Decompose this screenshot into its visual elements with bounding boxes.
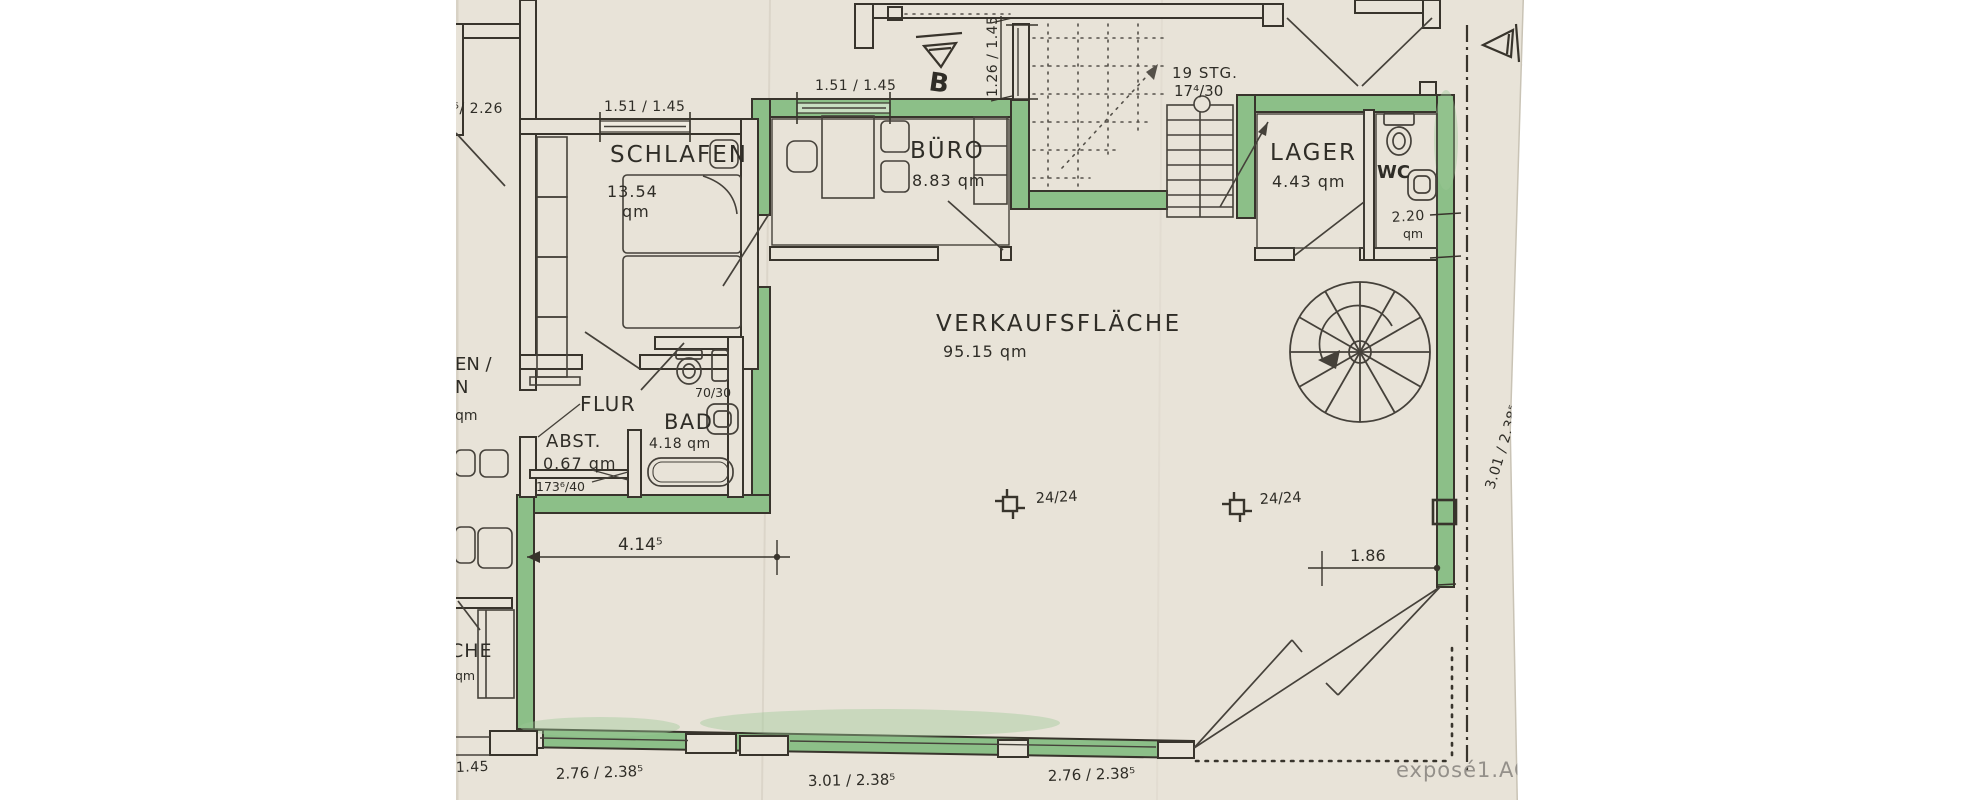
floor-plan-drawing: SCHLAFEN 13.54 qm BÜRO 8.83 qm LAGER 4.4… bbox=[0, 0, 1980, 800]
watermark: exposé1.AG bbox=[1396, 758, 1531, 782]
area-unit-kueche: qm bbox=[455, 668, 475, 683]
area-bad: 4.18 qm bbox=[649, 436, 711, 452]
area-buero: 8.83 qm bbox=[912, 171, 985, 190]
stairs-note-2: 17⁴/30 bbox=[1174, 82, 1223, 100]
dim-right-opening: 1.86 bbox=[1350, 546, 1386, 565]
abst-niche-size: 173⁶/40 bbox=[536, 479, 585, 494]
left-margin bbox=[0, 0, 456, 800]
stairs-note-1: 19 STG. bbox=[1172, 64, 1238, 82]
area-verkaufsflaeche: 95.15 qm bbox=[943, 342, 1028, 361]
dim-buero-window: 1.51 / 1.45 bbox=[815, 78, 896, 94]
room-label-bad: BAD bbox=[664, 410, 713, 434]
room-label-buero: BÜRO bbox=[910, 136, 985, 164]
area-wc: 2.20 bbox=[1391, 208, 1425, 226]
dim-bottom-left: 1.45 bbox=[456, 759, 490, 776]
section-letter-top: B bbox=[927, 67, 951, 99]
dim-bottom-3: 2.76 / 2.38⁵ bbox=[1048, 764, 1136, 785]
dim-stair-window: 1.26 / 1.45 bbox=[985, 16, 1001, 97]
room-label-left-cut-1: EN / bbox=[455, 354, 493, 375]
room-label-flur: FLUR bbox=[580, 392, 636, 416]
room-label-left-cut-3: qm bbox=[455, 408, 478, 424]
dim-interior-width: 4.14⁵ bbox=[618, 535, 663, 555]
room-label-schlafen: SCHLAFEN bbox=[610, 142, 748, 168]
column-size-right: 24/24 bbox=[1259, 490, 1302, 508]
area-lager: 4.43 qm bbox=[1272, 172, 1345, 191]
column-size-left: 24/24 bbox=[1035, 489, 1078, 507]
bad-window-size: 70/30 bbox=[695, 385, 731, 400]
area-schlafen: 13.54 bbox=[607, 182, 658, 201]
area-unit-wc: qm bbox=[1403, 226, 1423, 241]
right-margin bbox=[1511, 0, 1980, 800]
room-label-wc: WC bbox=[1377, 162, 1410, 183]
area-unit-schlafen: qm bbox=[622, 202, 650, 221]
dim-schlafen-window: 1.51 / 1.45 bbox=[604, 99, 685, 115]
spiral-stair bbox=[1290, 282, 1430, 422]
dim-bottom-1: 2.76 / 2.38⁵ bbox=[556, 762, 644, 783]
dim-bottom-2: 3.01 / 2.38⁵ bbox=[808, 770, 896, 790]
stair-window bbox=[1013, 24, 1029, 100]
room-label-lager: LAGER bbox=[1270, 140, 1357, 166]
floor-plan-scan: SCHLAFEN 13.54 qm BÜRO 8.83 qm LAGER 4.4… bbox=[0, 0, 1980, 800]
room-label-kueche-cut: CHE bbox=[450, 640, 493, 662]
room-label-verkaufsflaeche: VERKAUFSFLÄCHE bbox=[936, 309, 1182, 337]
room-label-left-cut-2: N bbox=[455, 377, 468, 398]
area-abst: 0.67 qm bbox=[543, 454, 616, 473]
room-label-abst: ABST. bbox=[546, 431, 601, 452]
